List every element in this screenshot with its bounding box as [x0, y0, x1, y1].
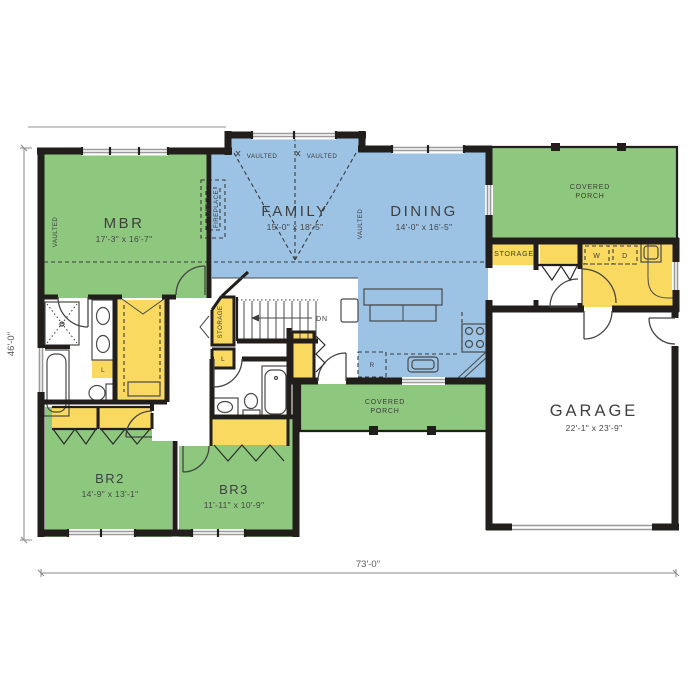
front-porch-post-2 [427, 426, 436, 435]
front-porch-label-1: COVERED [365, 399, 405, 406]
garage-door [512, 522, 652, 532]
hall-closet-chevron [200, 316, 209, 338]
vaulted-family-1: VAULTED [247, 153, 278, 160]
window-kitchen-front [402, 377, 445, 385]
garage-entry-door [584, 311, 612, 339]
vaulted-mbr: VAULTED [52, 217, 59, 248]
garage-label: GARAGE [550, 402, 639, 420]
vaulted-dining: VAULTED [357, 209, 364, 240]
washer-label: W [593, 253, 600, 260]
br3-label: BR3 [219, 482, 249, 497]
side-table [341, 299, 358, 322]
floor-plan-page: MBR 17'-3" x 16'-7" FAMILY 15'-0" x 18'-… [0, 0, 700, 700]
fridge-label: R [370, 362, 375, 369]
family-dims: 15'-0" x 18'-5" [267, 222, 324, 232]
br2-label: BR2 [95, 471, 125, 486]
rear-porch-label-2: PORCH [575, 193, 604, 200]
depth-dimension: 46'-0" [6, 332, 17, 356]
garage-side-door [649, 318, 675, 344]
window-br2-bottom [68, 529, 135, 537]
br2-closet-b [100, 407, 151, 429]
floor-plan-drawing: MBR 17'-3" x 16'-7" FAMILY 15'-0" x 18'-… [0, 0, 700, 700]
br2-dims: 14'-9" x 13'-1" [82, 489, 139, 499]
rear-porch-label-1: COVERED [570, 184, 610, 191]
fireplace-label-1: OPT. [205, 201, 212, 216]
window-br3-bottom [192, 529, 245, 537]
front-porch-post-1 [369, 426, 378, 435]
br3-dims: 11'-11" x 10'-9" [204, 500, 265, 510]
stair-storage-label: STORAGE [217, 306, 224, 339]
garage-dims: 22'-1" x 23'-9" [566, 423, 623, 433]
dining-label: DINING [390, 203, 458, 220]
vaulted-family-2: VAULTED [307, 153, 338, 160]
front-door [318, 353, 346, 381]
width-dim-line [38, 569, 679, 577]
fireplace-label-2: FIREPLACE [213, 190, 220, 228]
width-dimension: 73'-0" [356, 559, 380, 570]
mbr-label: MBR [104, 215, 145, 232]
master-sink-2 [97, 336, 110, 353]
mud-closet-floor [540, 241, 578, 265]
dining-dims: 14'-0" x 16'-5" [396, 222, 453, 232]
master-vanity [92, 300, 115, 360]
master-toilet-bowl [89, 386, 105, 401]
window-dining-east [485, 185, 493, 215]
dryer-label: D [622, 253, 628, 260]
depth-dim-line [20, 145, 32, 543]
utility-storage-label: STORAGE [494, 251, 534, 258]
stair-linen-label: L [221, 356, 225, 363]
bath-linen-label: L [101, 367, 105, 374]
window-tub-west [37, 348, 45, 392]
mbr-dims: 17'-3" x 16'-7" [96, 234, 153, 244]
mud-closet-rod [542, 266, 577, 280]
rear-porch-post-1 [551, 143, 560, 151]
front-porch-label-2: PORCH [370, 408, 399, 415]
window-mbr-top [82, 147, 168, 156]
master-sink-1 [97, 308, 110, 325]
mud-hall-door [550, 279, 578, 307]
window-family-top [252, 131, 336, 140]
window-laundry-east [672, 262, 680, 290]
hallbath-sink [218, 402, 233, 413]
hallbath-toilet-bowl [245, 394, 258, 409]
br2-closet-a [52, 407, 97, 429]
window-dining-top [392, 145, 464, 154]
stair-down-label: DN [316, 316, 328, 323]
family-label: FAMILY [261, 203, 328, 220]
hallbath-vanity [212, 398, 238, 417]
br3-closet [212, 420, 288, 445]
hallbath-tub-drain [275, 377, 278, 380]
rear-porch-post-2 [617, 143, 626, 151]
